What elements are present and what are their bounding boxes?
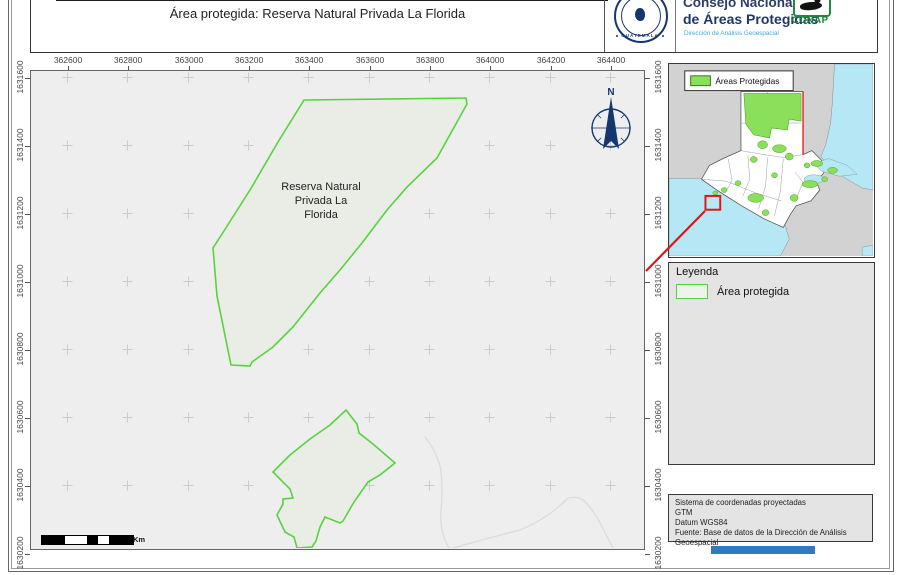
reserve-label-line: Privada La <box>251 194 391 208</box>
org-name-line1: Consejo Nacional <box>683 0 863 10</box>
y-axis-label-right: 1630200 <box>653 531 663 575</box>
y-axis-label-left: 1631400 <box>15 123 25 167</box>
compass-tick <box>598 115 602 119</box>
y-axis-tick-right <box>645 486 650 487</box>
overview-green-area <box>811 160 823 166</box>
reserve-polygon <box>213 98 467 366</box>
y-axis-tick-right <box>645 350 650 351</box>
y-axis-label-right: 1630800 <box>653 327 663 371</box>
overview-map-panel: Áreas Protegidas <box>668 63 875 258</box>
overview-shape <box>691 76 711 86</box>
y-axis-tick-right <box>645 282 650 283</box>
map-subtitle: Área protegida: Reserva Natural Privada … <box>31 6 604 21</box>
overview-green-area <box>828 167 838 173</box>
reserve-label-line: Reserva Natural <box>251 180 391 194</box>
protected-area-swatch <box>676 284 708 299</box>
y-axis-tick-right <box>645 554 650 555</box>
legend-item: Área protegida <box>676 284 874 299</box>
legend-panel: Leyenda Área protegida <box>668 262 875 465</box>
scale-segment <box>109 536 133 544</box>
overview-green-area <box>750 157 757 163</box>
header-divider-2 <box>675 0 676 52</box>
map-canvas <box>31 71 643 548</box>
y-axis-label-left: 1630400 <box>15 463 25 507</box>
x-axis-label: 364000 <box>468 55 512 65</box>
scale-unit-label: Km <box>133 535 145 544</box>
crs-line: Fuente: Base de datos de la Dirección de… <box>675 528 866 548</box>
seal-dot <box>616 35 618 37</box>
x-axis-label: 362800 <box>106 55 150 65</box>
crs-info-panel: Sistema de coordenadas proyectadas GTM D… <box>668 494 873 542</box>
y-axis-label-left: 1631200 <box>15 191 25 235</box>
legend-title: Leyenda <box>669 263 874 278</box>
north-arrow: N <box>589 85 633 159</box>
quetzal-emblem-icon <box>635 8 645 21</box>
reserve-polygon <box>273 410 395 548</box>
y-axis-label-left: 1630800 <box>15 327 25 371</box>
overview-green-area <box>822 177 828 182</box>
x-axis-label: 363000 <box>167 55 211 65</box>
overview-map: Áreas Protegidas <box>669 64 873 256</box>
overview-green-area <box>790 194 798 201</box>
y-axis-label-right: 1631000 <box>653 259 663 303</box>
conap-caption: CONAP <box>787 15 833 26</box>
clipped-blue-bar <box>711 546 815 554</box>
org-name-line2: de Áreas Protegidas <box>683 11 873 27</box>
y-axis-label-right: 1631600 <box>653 55 663 99</box>
y-axis-label-left: 1631000 <box>15 259 25 303</box>
north-needle <box>603 97 619 149</box>
x-axis-label: 363800 <box>408 55 452 65</box>
overview-green-area <box>772 145 786 153</box>
overview-green-area <box>771 173 777 178</box>
scale-segment <box>87 536 98 544</box>
compass-tick <box>621 115 625 119</box>
y-axis-tick-right <box>645 146 650 147</box>
scale-segment <box>98 536 109 544</box>
conap-animal-glyph <box>800 1 823 11</box>
y-axis-tick-left <box>25 554 30 555</box>
seal-caption: GUATEMALA <box>610 33 670 38</box>
y-axis-label-left: 1630200 <box>15 531 25 575</box>
seal-dot <box>662 35 664 37</box>
y-axis-tick-right <box>645 78 650 79</box>
x-axis-label: 363400 <box>287 55 331 65</box>
y-axis-label-right: 1631400 <box>653 123 663 167</box>
north-label: N <box>607 87 614 98</box>
main-map: Reserva NaturalPrivada LaFlorida Km N <box>30 70 645 550</box>
y-axis-label-right: 1631200 <box>653 191 663 235</box>
compass-tick <box>598 138 602 142</box>
x-axis-label: 362600 <box>46 55 90 65</box>
org-subunit: Dirección de Análisis Geoespacial <box>684 30 874 37</box>
compass-tick <box>621 138 625 142</box>
header-divider <box>604 0 605 52</box>
overview-green-area <box>762 210 769 216</box>
overview-green-area <box>721 188 727 193</box>
overview-green-area <box>735 181 741 186</box>
crs-line: Sistema de coordenadas proyectadas <box>675 498 866 508</box>
title-block: Área protegida: Reserva Natural Privada … <box>30 0 878 53</box>
x-axis-label: 363200 <box>227 55 271 65</box>
overview-green-area <box>713 191 718 195</box>
overview-green-area <box>804 163 810 168</box>
reserve-label-line: Florida <box>251 208 391 222</box>
overview-green-area <box>802 181 818 188</box>
y-axis-tick-right <box>645 418 650 419</box>
crs-line: Datum WGS84 <box>675 518 866 528</box>
stream-line <box>447 497 613 548</box>
y-axis-label-left: 1631600 <box>15 55 25 99</box>
scale-bar <box>41 535 134 545</box>
y-axis-tick-right <box>645 214 650 215</box>
x-axis-label: 364400 <box>589 55 633 65</box>
map-document: { "header": { "title": "Área protegida: … <box>0 0 900 550</box>
scale-segment <box>42 536 65 544</box>
overview-green-area <box>758 141 768 149</box>
clipped-title-line <box>56 0 608 1</box>
y-axis-label-left: 1630600 <box>15 395 25 439</box>
overview-legend-label: Áreas Protegidas <box>715 76 779 86</box>
overview-green-area <box>748 193 764 202</box>
overview-green-area <box>785 153 793 160</box>
stream-line <box>425 437 450 548</box>
legend-item-label: Área protegida <box>717 286 789 298</box>
overview-shape <box>862 245 873 256</box>
y-axis-label-right: 1630600 <box>653 395 663 439</box>
x-axis-label: 363600 <box>348 55 392 65</box>
crs-line: GTM <box>675 508 866 518</box>
reserve-label: Reserva NaturalPrivada LaFlorida <box>251 180 391 222</box>
scale-segment <box>65 536 87 544</box>
x-axis-label: 364200 <box>529 55 573 65</box>
y-axis-label-right: 1630400 <box>653 463 663 507</box>
